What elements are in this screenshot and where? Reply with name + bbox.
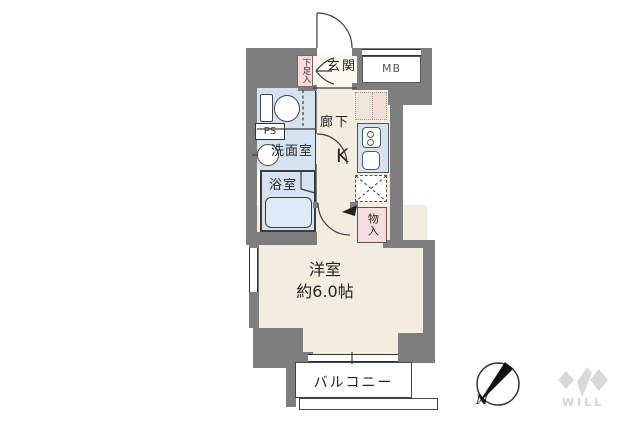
compass-icon: N [475, 362, 519, 408]
pipe-space-box: PS [255, 123, 285, 140]
main-room-size: 約6.0帖 [255, 283, 395, 301]
will-logo-icon: WILL [558, 367, 608, 409]
will-logo-text: WILL [562, 396, 604, 409]
kitchen-sink [362, 151, 380, 170]
stove [362, 127, 381, 148]
wall [383, 240, 435, 248]
burner [367, 131, 374, 138]
wall [246, 88, 257, 245]
vent-louver [362, 49, 421, 56]
entrance-door-arc [317, 13, 352, 48]
balcony-label: バルコニー [314, 375, 394, 391]
meter-box: MB [362, 56, 421, 83]
washroom-label: 洗面室 [271, 145, 313, 160]
washer-space-half [372, 93, 386, 119]
toilet-tank [260, 94, 273, 122]
pipe-space-label: PS [264, 126, 276, 138]
main-room-label: 洋室 約6.0帖 [255, 261, 395, 302]
corridor-label: 廊下 [320, 116, 350, 131]
balcony: バルコニー [295, 362, 412, 398]
meter-box-label: MB [382, 63, 401, 76]
shoe-storage-box: 下足入 [297, 55, 313, 87]
storage-label: 物入 [366, 213, 379, 237]
wall [246, 232, 317, 245]
wall [388, 83, 432, 105]
main-room-name: 洋室 [255, 261, 395, 279]
washer-space [355, 92, 387, 120]
toilet-bowl [274, 95, 300, 122]
shoe-storage-label: 下足入 [300, 58, 310, 84]
refrigerator-space [355, 175, 387, 202]
wall [398, 333, 435, 363]
compass-north-label: N [475, 393, 489, 408]
wall [313, 202, 318, 208]
kitchen-label: K [336, 146, 348, 168]
wall [246, 48, 298, 88]
wall [390, 105, 403, 248]
window [308, 354, 398, 362]
bathtub [265, 197, 312, 228]
genkan-label: 玄関 [327, 60, 357, 75]
floorplan-canvas: MB PS 下足入 物入 バルコニー 玄関 廊下 K 洗面室 浴室 洋室 約6.… [0, 0, 640, 427]
balcony-slab [299, 398, 438, 410]
storage-box: 物入 [357, 207, 387, 243]
bathroom-label: 浴室 [269, 179, 297, 194]
burner [367, 139, 374, 146]
